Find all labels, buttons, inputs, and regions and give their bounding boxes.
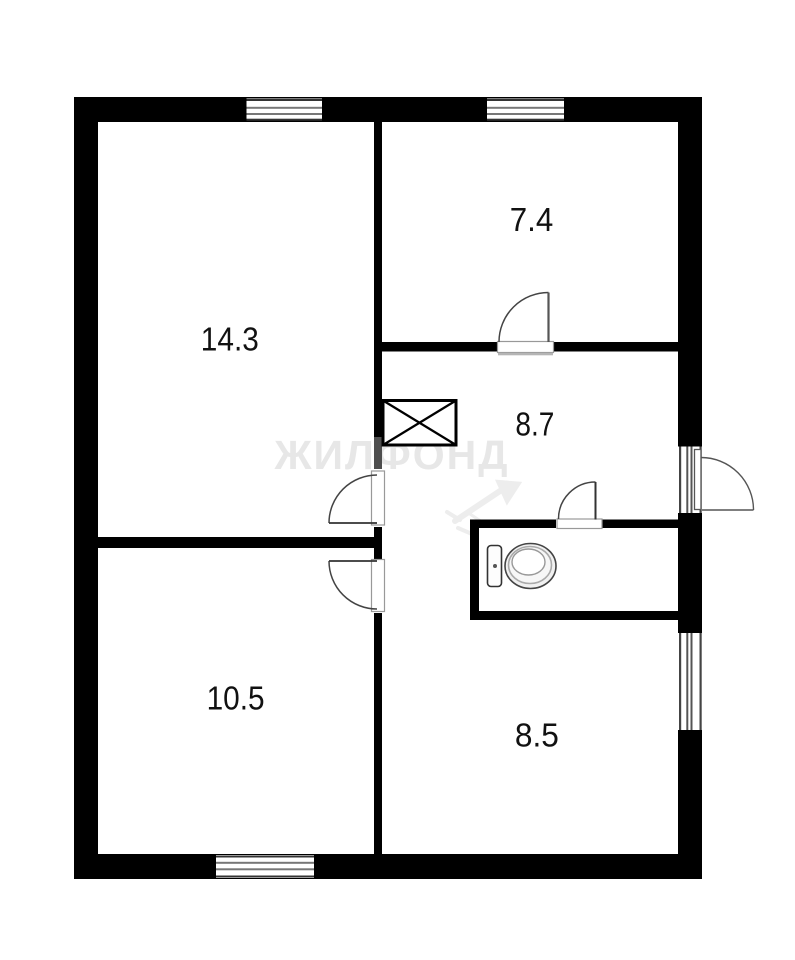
svg-text:10.5: 10.5 (207, 679, 265, 716)
svg-text:8.5: 8.5 (515, 717, 559, 754)
svg-text:7.4: 7.4 (510, 201, 554, 238)
svg-text:8.7: 8.7 (515, 406, 554, 443)
svg-text:14.3: 14.3 (201, 321, 259, 358)
